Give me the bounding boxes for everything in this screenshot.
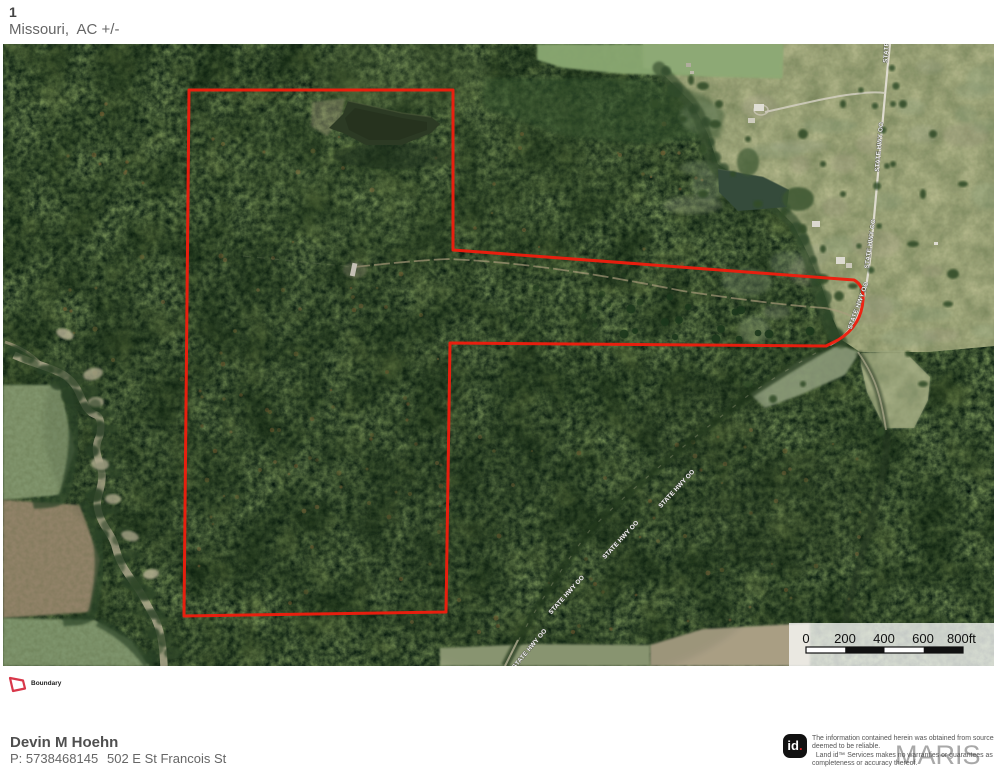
svg-text:200: 200 xyxy=(834,631,856,646)
svg-text:800ft: 800ft xyxy=(947,631,976,646)
svg-text:400: 400 xyxy=(873,631,895,646)
svg-text:600: 600 xyxy=(912,631,934,646)
svg-text:0: 0 xyxy=(802,631,809,646)
